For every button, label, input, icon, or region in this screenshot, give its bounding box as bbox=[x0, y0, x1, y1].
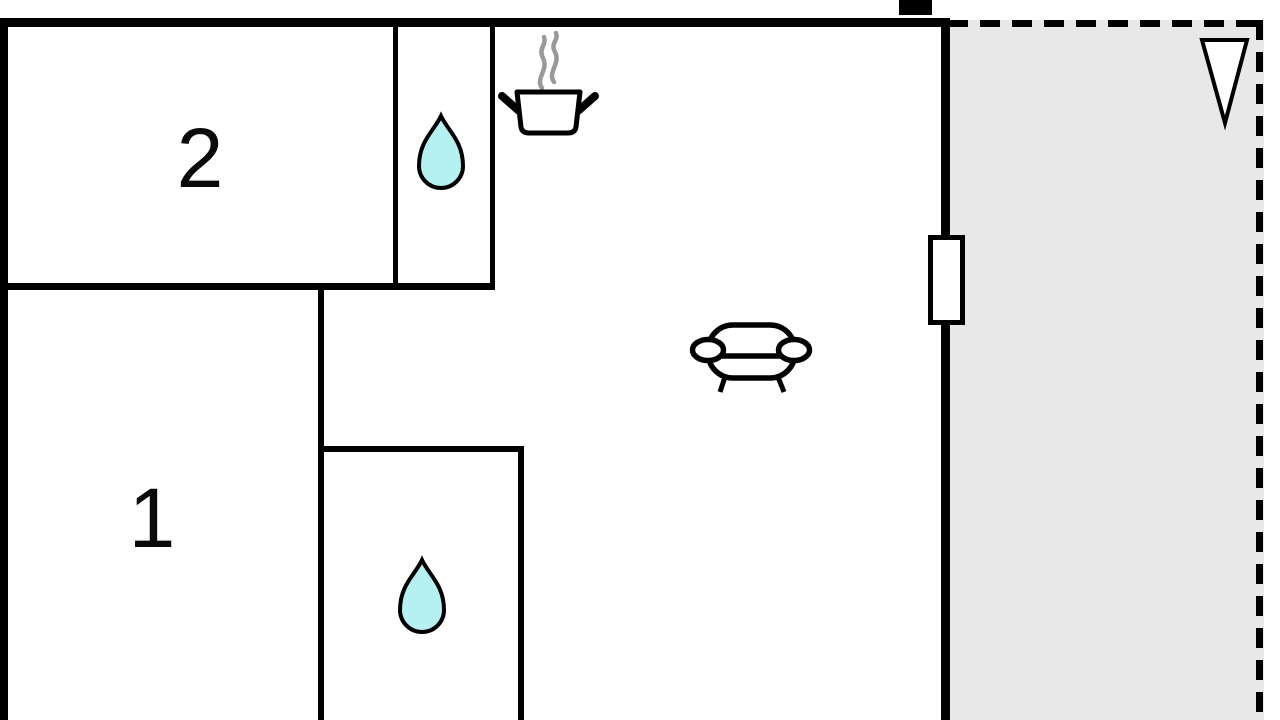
window-marker-glass bbox=[933, 240, 960, 320]
wall-room2-bottom bbox=[0, 283, 495, 290]
wall-room2-bath-divider bbox=[393, 18, 398, 290]
wall-bath-bottom-right bbox=[518, 446, 524, 720]
wall-top-exterior bbox=[0, 18, 948, 27]
wall-bath-bottom-top bbox=[318, 446, 524, 452]
wall-bath-top-right bbox=[490, 18, 495, 290]
chimney-marker bbox=[899, 0, 932, 15]
pot-body bbox=[517, 92, 580, 133]
sofa-armrest-right bbox=[779, 340, 810, 361]
room1-label: 1 bbox=[129, 471, 176, 565]
wall-left-exterior bbox=[0, 18, 8, 720]
sofa-armrest-left bbox=[693, 340, 724, 361]
wall-room1-right bbox=[318, 283, 324, 720]
wall-right-exterior bbox=[941, 18, 950, 720]
room2-label: 2 bbox=[177, 111, 224, 205]
terrace-floor bbox=[948, 20, 1264, 720]
terrace-area bbox=[948, 20, 1266, 720]
floor-plan: 2 1 bbox=[0, 0, 1280, 720]
window-marker bbox=[928, 235, 965, 325]
